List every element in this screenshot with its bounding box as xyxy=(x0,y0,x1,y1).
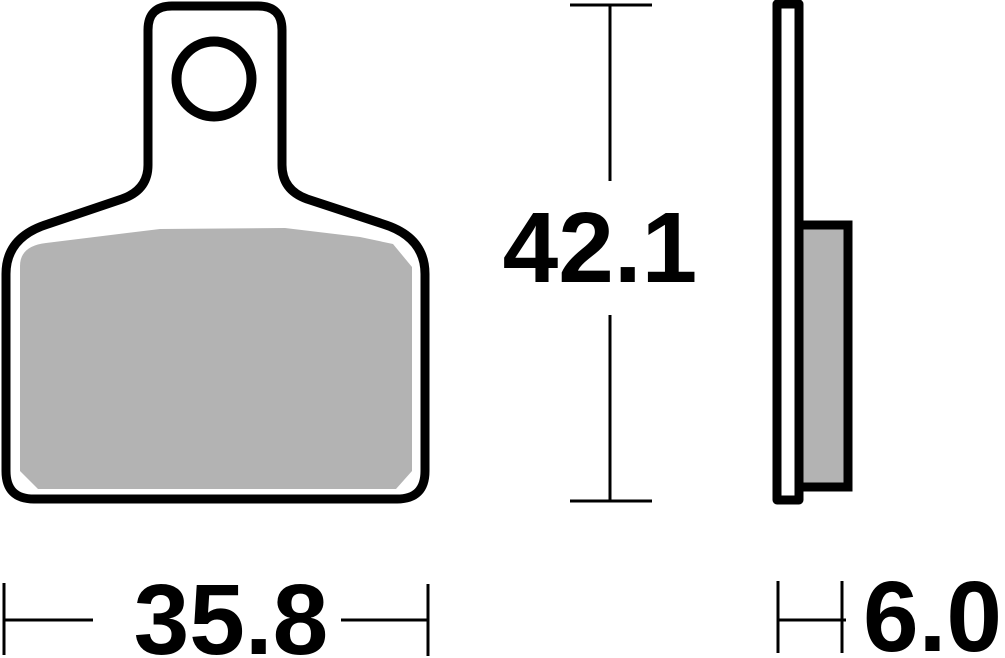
thickness-dimension: 6.0 xyxy=(778,561,1002,658)
height-dimension-label: 42.1 xyxy=(503,192,698,304)
height-dimension: 42.1 xyxy=(503,5,698,501)
drawing-svg: 42.1 35.8 6.0 xyxy=(0,0,1005,658)
front-view xyxy=(6,6,425,499)
width-dimension-label: 35.8 xyxy=(134,564,329,658)
side-view xyxy=(777,4,848,500)
friction-material-front xyxy=(20,228,412,489)
brake-pad-technical-drawing: 42.1 35.8 6.0 xyxy=(0,0,1005,658)
width-dimension: 35.8 xyxy=(4,564,428,658)
friction-material-side xyxy=(799,225,848,487)
thickness-dimension-label: 6.0 xyxy=(863,561,1002,658)
